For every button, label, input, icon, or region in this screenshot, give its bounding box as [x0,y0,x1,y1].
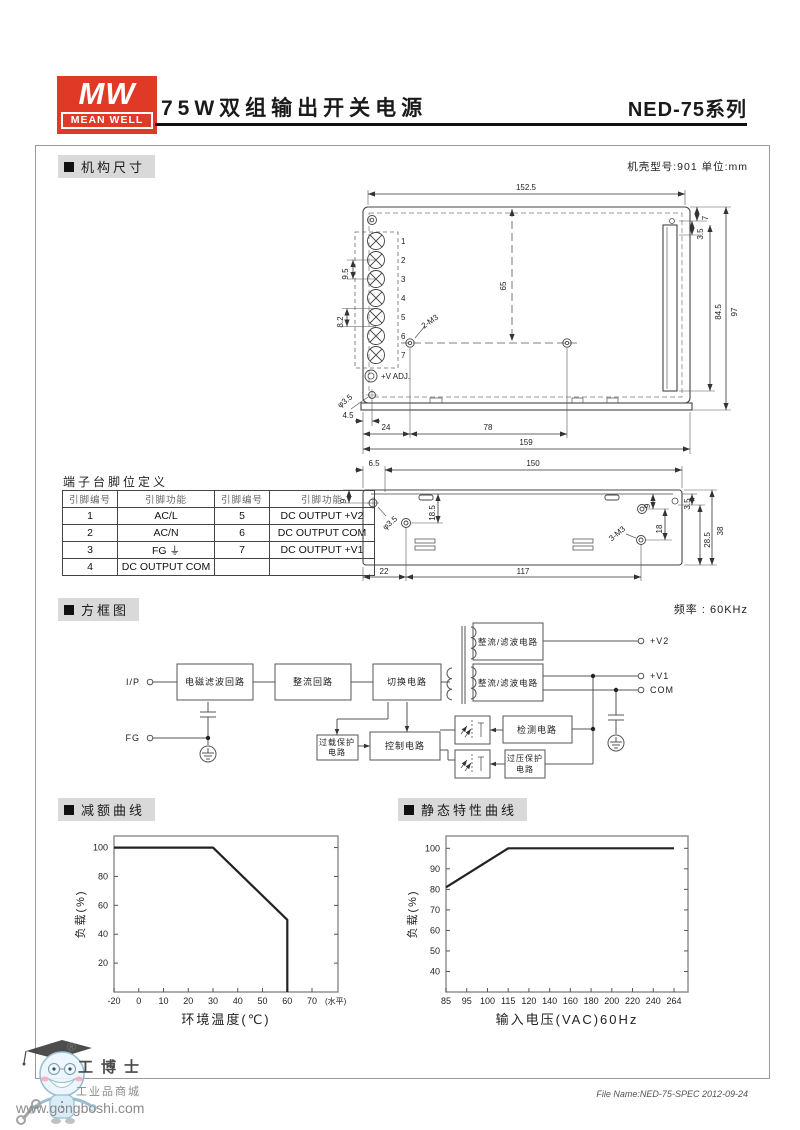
svg-text:30: 30 [208,996,218,1006]
pin-7: 7 [401,351,406,360]
cell: 2 [63,525,118,542]
col-pin-fn-1: 引脚功能 [118,491,215,508]
svg-text:20: 20 [98,958,108,968]
centerlines: 2-M3 65 [401,209,577,347]
olp-box-label-1: 过载保护 [319,737,355,747]
m3-leader [626,534,636,538]
section-static-curve: 静态特性曲线 [398,798,527,821]
svg-text:80: 80 [430,884,440,894]
phi-label: φ3.5 [336,392,355,409]
pin-5: 5 [401,313,406,322]
dim-22: 22 [380,567,389,576]
dim-150: 150 [526,459,540,468]
dim-159: 159 [519,438,533,447]
svg-text:115: 115 [501,996,515,1006]
svg-text:140: 140 [542,996,557,1006]
optocoupler-icon [461,754,484,774]
dim-18-5: 18.5 [428,505,437,521]
registered-mark: ® [67,1040,76,1054]
svg-text:264: 264 [666,996,681,1006]
meanwell-logo: MW MEAN WELL [57,76,157,134]
pin-table-title: 端子台脚位定义 [63,473,168,490]
svg-text:90: 90 [430,864,440,874]
dim-7: 7 [701,215,710,220]
dim-8-2: 8.2 [336,316,345,328]
cell [215,559,270,576]
svg-text:200: 200 [604,996,619,1006]
cell: 5 [215,508,270,525]
ovp-box-label-1: 过压保护 [507,753,543,763]
svg-text:输入电压(VAC)60Hz: 输入电压(VAC)60Hz [496,1012,639,1027]
svg-text:环境温度(℃): 环境温度(℃) [181,1012,270,1027]
col-pin-no-1: 引脚编号 [63,491,118,508]
v-adj-label: +V ADJ. [381,372,410,381]
pin-1: 1 [401,237,406,246]
section-bullet [64,805,74,815]
svg-text:70: 70 [430,905,440,915]
dim-78: 78 [484,423,493,432]
dim-18: 18 [655,524,664,533]
svg-text:100: 100 [425,843,440,853]
table-row: 3 FG ⏚ 7 DC OUTPUT +V1 [63,542,375,559]
cell: 6 [215,525,270,542]
svg-text:-20: -20 [107,996,120,1006]
block-diagram: I/P FG +V2 +V1 COM 电磁滤波回路 整流回路 切换电路 整流/滤… [60,612,755,797]
section-derating-curve: 减额曲线 [58,798,155,821]
svg-text:负载(%): 负载(%) [73,889,87,938]
series-name: NED-75系列 [628,93,747,122]
rect-filter1-box-label: 整流/滤波电路 [478,637,538,647]
dim-3-5-side: 3.5 [683,498,692,510]
svg-text:180: 180 [584,996,599,1006]
2m3-label: 2-M3 [420,312,441,330]
derating-curve-chart: -20010203040506070(水平)20406080100环境温度(℃)… [70,822,350,1034]
table-row: 1 AC/L 5 DC OUTPUT +V2 [63,508,375,525]
gongboshi-url: www.gongboshi.com [16,1100,144,1116]
svg-text:60: 60 [98,900,108,910]
svg-text:60: 60 [282,996,292,1006]
v1-label: +V1 [650,671,669,681]
svg-text:60: 60 [430,925,440,935]
side-extension-lines [343,466,717,581]
dim-152-5: 152.5 [516,183,537,192]
title-underline [155,123,747,126]
dim-28-5: 28.5 [703,532,712,548]
flange-tabs [430,398,618,403]
mount-hole: φ3.5 [336,389,378,410]
v2-label: +V2 [650,636,669,646]
section-bullet [64,162,74,172]
rect-filter2-box-label: 整流/滤波电路 [478,678,538,688]
section-mechanical-label: 机构尺寸 [81,157,145,176]
cell: 1 [63,508,118,525]
fg-label: FG [126,733,141,743]
pin-2: 2 [401,256,406,265]
emi-filter-box-label: 电磁滤波回路 [185,676,245,687]
cell: FG ⏚ [118,542,215,559]
cell: DC OUTPUT COM [118,559,215,576]
table-row: 2 AC/N 6 DC OUTPUT COM [63,525,375,542]
svg-text:(水平): (水平) [325,996,347,1006]
svg-text:240: 240 [646,996,661,1006]
svg-text:80: 80 [98,871,108,881]
svg-text:100: 100 [93,843,108,853]
dim-38: 38 [716,526,725,535]
logo-meanwell-text: MEAN WELL [61,112,153,129]
logo-mw-text: MW [57,76,157,112]
pin-3: 3 [401,275,406,284]
cell: 3 [63,542,118,559]
pin-table: 引脚编号 引脚功能 引脚编号 引脚功能 1 AC/L 5 DC OUTPUT +… [62,490,375,576]
ovp-box-label-2: 电路 [516,764,534,774]
svg-text:50: 50 [430,946,440,956]
side-features [367,495,647,550]
svg-text:50: 50 [257,996,267,1006]
section-static-label: 静态特性曲线 [421,800,517,819]
page-title: 75W双组输出开关电源 [161,92,427,122]
side-dimension-labels: 6.5 150 9 18.5 9 18 3.5 28.5 38 22 117 [339,459,725,576]
gongboshi-mall: 工业品商城 [76,1083,141,1099]
earth-ground-icon [608,735,624,751]
v-adj-pot: +V ADJ. [365,370,410,382]
chassis-inner-dashed [369,213,682,397]
dim-3-5: 3.5 [696,228,705,240]
phi-leader [378,507,386,516]
svg-text:0: 0 [136,996,141,1006]
svg-text:100: 100 [480,996,495,1006]
col-pin-no-2: 引脚编号 [215,491,270,508]
static-curve-chart: 8595100115120140160180200220240264405060… [402,822,700,1034]
pin-6: 6 [401,332,406,341]
side-view-drawing: φ3.5 3-M3 6.5 150 9 18.5 9 18 3.5 28.5 3… [335,452,765,587]
svg-text:40: 40 [233,996,243,1006]
svg-text:负载(%): 负载(%) [405,889,419,938]
ip-label: I/P [126,677,140,687]
dim-65: 65 [499,281,508,290]
section-mechanical: 机构尺寸 [58,155,155,178]
svg-text:120: 120 [521,996,536,1006]
side-outline [363,490,682,565]
svg-text:70: 70 [307,996,317,1006]
dimension-labels: 152.5 7 3.5 84.5 97 9.5 8.2 4.5 24 78 15… [336,183,739,447]
optocoupler-icon [461,720,484,740]
dim-6-5: 6.5 [368,459,380,468]
dim-84-5: 84.5 [714,304,723,320]
dim-24: 24 [382,423,391,432]
svg-text:160: 160 [563,996,578,1006]
section-derating-label: 减额曲线 [81,800,145,819]
transformer [447,626,476,704]
section-bullet [404,805,414,815]
gongboshi-brand: 工博士 [78,1056,147,1077]
svg-text:95: 95 [462,996,472,1006]
cell: AC/N [118,525,215,542]
dim-117: 117 [517,567,530,576]
side-dimension-lines [349,470,712,577]
earth-ground-icon [200,746,216,762]
svg-text:220: 220 [625,996,640,1006]
svg-text:40: 40 [430,966,440,976]
svg-text:85: 85 [441,996,451,1006]
side-3m3-label: 3-M3 [607,524,627,543]
rectifier-box-label: 整流回路 [293,676,333,687]
switching-box-label: 切换电路 [387,676,427,687]
extension-lines [342,190,731,454]
dim-9-right: 9 [643,503,652,508]
cell: 4 [63,559,118,576]
cell: AC/L [118,508,215,525]
olp-box-label-2: 电路 [328,747,346,757]
pin-4: 4 [401,294,406,303]
com-label: COM [650,685,674,695]
dim-97: 97 [730,307,739,316]
dim-9-left: 9 [339,498,348,503]
svg-text:20: 20 [183,996,193,1006]
table-row: 4 DC OUTPUT COM [63,559,375,576]
dim-9-5: 9.5 [341,268,350,280]
pin-table-header-row: 引脚编号 引脚功能 引脚编号 引脚功能 [63,491,375,508]
svg-text:10: 10 [158,996,168,1006]
top-view-drawing: 1 2 3 4 5 6 7 +V ADJ. φ3.5 2-M3 65 [335,178,765,463]
detect-box-label: 检测电路 [517,724,557,735]
svg-text:40: 40 [98,929,108,939]
file-name-note: File Name:NED-75-SPEC 2012-09-24 [596,1089,748,1099]
case-note: 机壳型号:901 单位:mm [627,159,748,174]
dim-4-5: 4.5 [342,411,354,420]
control-box-label: 控制电路 [385,740,425,751]
cell: 7 [215,542,270,559]
side-phi-label: φ3.5 [381,514,400,532]
chassis-outline [361,207,692,410]
